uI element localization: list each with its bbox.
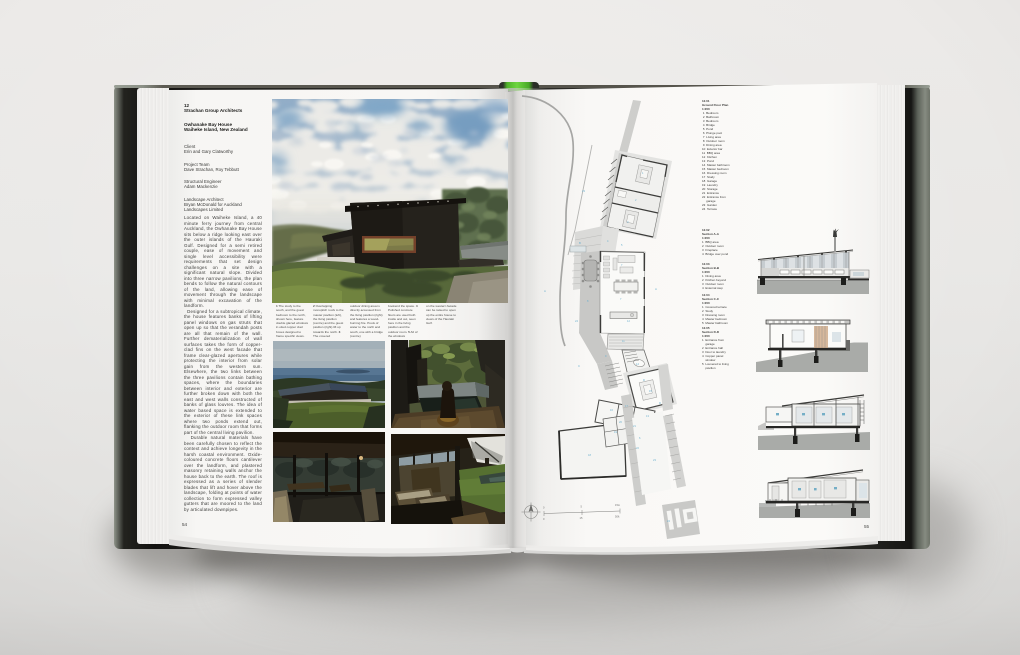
svg-text:A: A (655, 287, 657, 291)
svg-text:D: D (659, 401, 661, 405)
svg-text:24: 24 (575, 319, 578, 323)
svg-text:15m: 15m (615, 503, 620, 507)
svg-text:0: 0 (543, 506, 545, 510)
svg-text:D: D (643, 378, 645, 382)
svg-text:A: A (544, 289, 546, 293)
svg-text:15: 15 (580, 516, 583, 520)
svg-text:0: 0 (543, 517, 545, 521)
svg-text:5: 5 (581, 505, 583, 509)
svg-text:5: 5 (621, 243, 623, 247)
svg-text:C: C (578, 364, 580, 368)
svg-text:23: 23 (582, 189, 585, 193)
svg-text:B: B (579, 241, 581, 245)
svg-text:50ft: 50ft (615, 515, 620, 519)
